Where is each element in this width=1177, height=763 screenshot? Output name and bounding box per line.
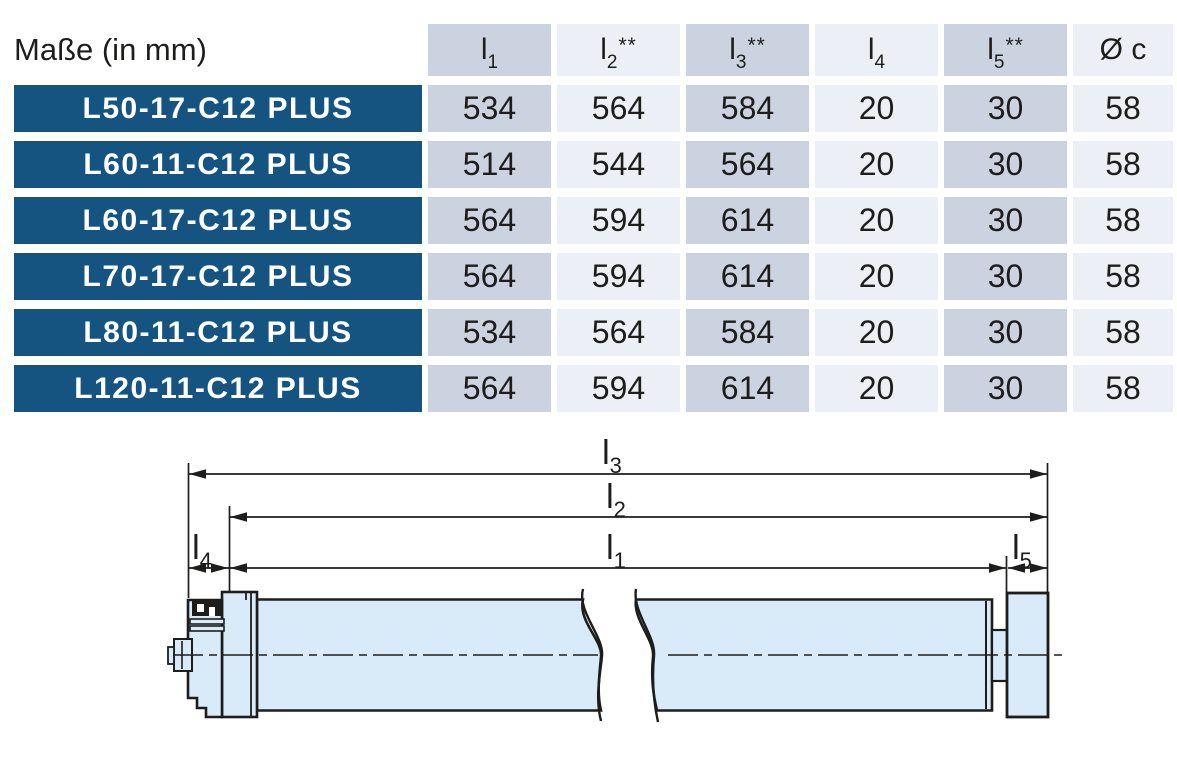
column-header-l1: l1 <box>428 24 551 76</box>
column-header-diameter: Ø c <box>1073 24 1173 76</box>
value-cell: 564 <box>557 309 680 356</box>
value-cell: 30 <box>944 141 1067 188</box>
value-cell: 544 <box>557 141 680 188</box>
dimensions-table: Maße (in mm) l1 l2** l3** l4 l5** Ø c L5… <box>14 24 1173 412</box>
dim-label-l4: l4 <box>192 529 212 573</box>
value-cell: 30 <box>944 85 1067 132</box>
model-label: L60-11-C12 PLUS <box>14 141 422 188</box>
dim-label-l5: l5 <box>1012 529 1032 573</box>
value-cell: 20 <box>815 365 938 412</box>
value-cell: 20 <box>815 253 938 300</box>
value-cell: 584 <box>686 309 809 356</box>
value-cell: 564 <box>428 253 551 300</box>
value-cell: 564 <box>428 365 551 412</box>
value-cell: 58 <box>1073 141 1173 188</box>
column-header-l2: l2** <box>557 24 680 76</box>
value-cell: 614 <box>686 253 809 300</box>
value-cell: 58 <box>1073 85 1173 132</box>
value-cell: 58 <box>1073 309 1173 356</box>
value-cell: 564 <box>428 197 551 244</box>
value-cell: 594 <box>557 253 680 300</box>
value-cell: 58 <box>1073 365 1173 412</box>
value-cell: 58 <box>1073 197 1173 244</box>
value-cell: 514 <box>428 141 551 188</box>
value-cell: 30 <box>944 365 1067 412</box>
value-cell: 614 <box>686 365 809 412</box>
dim-label-l1: l1 <box>606 529 626 573</box>
value-cell: 20 <box>815 141 938 188</box>
witness-lines <box>189 463 1048 599</box>
value-cell: 584 <box>686 85 809 132</box>
dim-label-l2: l2 <box>606 478 626 522</box>
column-header-l5: l5** <box>944 24 1067 76</box>
value-cell: 58 <box>1073 253 1173 300</box>
value-cell: 534 <box>428 309 551 356</box>
dim-label-l3: l3 <box>602 434 622 478</box>
value-cell: 30 <box>944 253 1067 300</box>
value-cell: 564 <box>557 85 680 132</box>
dimension-diagram: l3 l2 l1 l4 l5 Ø c <box>0 430 1177 763</box>
value-cell: 30 <box>944 197 1067 244</box>
value-cell: 20 <box>815 85 938 132</box>
value-cell: 614 <box>686 197 809 244</box>
value-cell: 594 <box>557 197 680 244</box>
model-label: L60-17-C12 PLUS <box>14 197 422 244</box>
column-header-l3: l3** <box>686 24 809 76</box>
value-cell: 564 <box>686 141 809 188</box>
datasheet-page: Maße (in mm) l1 l2** l3** l4 l5** Ø c L5… <box>0 0 1177 763</box>
column-header-l4: l4 <box>815 24 938 76</box>
value-cell: 30 <box>944 309 1067 356</box>
model-label: L120-11-C12 PLUS <box>14 365 422 412</box>
model-label: L80-11-C12 PLUS <box>14 309 422 356</box>
value-cell: 594 <box>557 365 680 412</box>
value-cell: 534 <box>428 85 551 132</box>
table-title: Maße (in mm) <box>14 24 422 76</box>
model-label: L50-17-C12 PLUS <box>14 85 422 132</box>
model-label: L70-17-C12 PLUS <box>14 253 422 300</box>
value-cell: 20 <box>815 309 938 356</box>
value-cell: 20 <box>815 197 938 244</box>
